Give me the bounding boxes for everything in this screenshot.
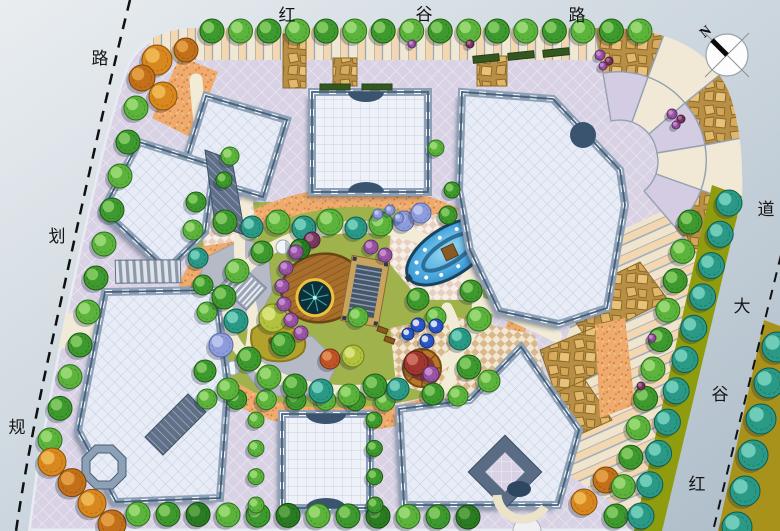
building-south	[282, 414, 370, 508]
road-label-right-4: 红	[689, 475, 706, 494]
road-label-top-3: 路	[569, 6, 586, 25]
road-label-right-1: 道	[758, 200, 775, 219]
striped-canopy	[114, 256, 182, 288]
road-label-top-1: 红	[279, 6, 296, 25]
road-label-right-2: 大	[734, 297, 751, 316]
road-label-left-1: 路	[92, 49, 109, 68]
building-north	[312, 92, 428, 192]
master-plan-screenshot: { "meta": { "title": "Residential quarte…	[0, 0, 780, 531]
entrance	[507, 481, 531, 497]
road-label-top-2: 谷	[416, 5, 433, 24]
road-label-right-3: 谷	[712, 385, 729, 404]
road-label-left-2: 划	[49, 227, 66, 246]
arched-entrance	[570, 122, 596, 148]
site-plan-canvas: N 红 谷 路 路 划 规 道 大 谷 红	[0, 0, 780, 531]
road-label-left-3: 规	[9, 418, 26, 437]
